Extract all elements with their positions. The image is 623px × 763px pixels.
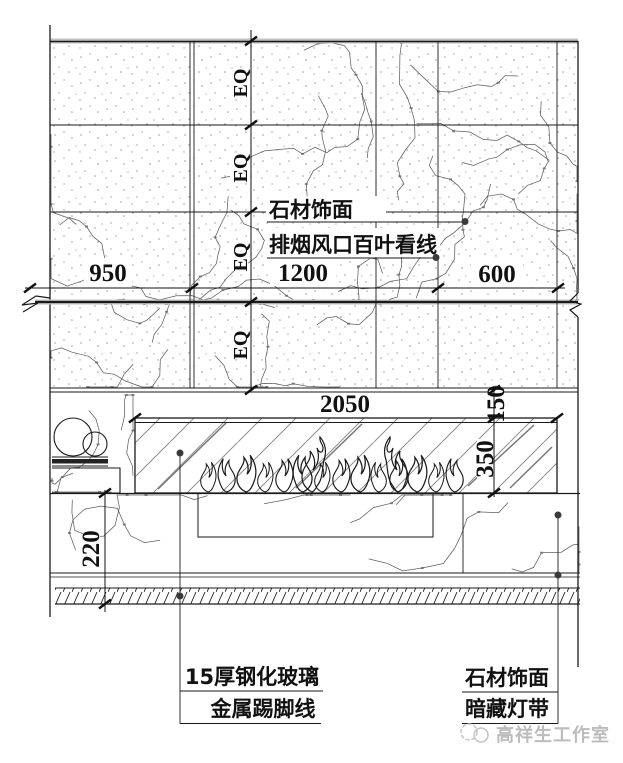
skirting-hatch-band [55, 588, 580, 604]
dim-950: 950 [89, 260, 127, 287]
decor-sphere-large [54, 418, 92, 456]
label-stone-finish-bottom: 石材饰面 [464, 666, 549, 690]
decor-spheres-and-stand [52, 418, 120, 493]
dim-1200: 1200 [278, 260, 328, 287]
watermark-text: 高祥生工作室 [496, 724, 610, 746]
eq-dim-label-1: EQ [230, 69, 252, 98]
label-stone-finish-top: 石材饰面 [268, 198, 353, 222]
decor-sphere-small [83, 432, 107, 456]
marble-veins-lower [51, 394, 135, 493]
eq-dim-label-4: EQ [230, 331, 252, 360]
dim-220: 220 [78, 530, 105, 568]
elevation-drawing: EQ EQ EQ EQ 950 1200 600 2050 150 350 22… [0, 0, 623, 763]
cad-drawing-sheet: EQ EQ EQ EQ 950 1200 600 2050 150 350 22… [0, 0, 623, 763]
label-concealed-light-strip: 暗藏灯带 [465, 697, 549, 721]
dim-150: 150 [483, 385, 510, 423]
firebox-inset [198, 494, 433, 537]
eq-dim-label-3: EQ [230, 243, 252, 272]
dim-2050: 2050 [320, 391, 370, 418]
label-metal-skirting: 金属踢脚线 [210, 697, 316, 721]
studio-watermark: 高祥生工作室 [461, 724, 610, 746]
label-tempered-glass: 15厚钢化玻璃 [185, 665, 319, 689]
dim-350: 350 [472, 440, 499, 478]
label-exhaust-louver-line: 排烟风口百叶看线 [269, 233, 437, 257]
dim-600: 600 [478, 261, 516, 288]
eq-dim-label-2: EQ [230, 154, 252, 183]
